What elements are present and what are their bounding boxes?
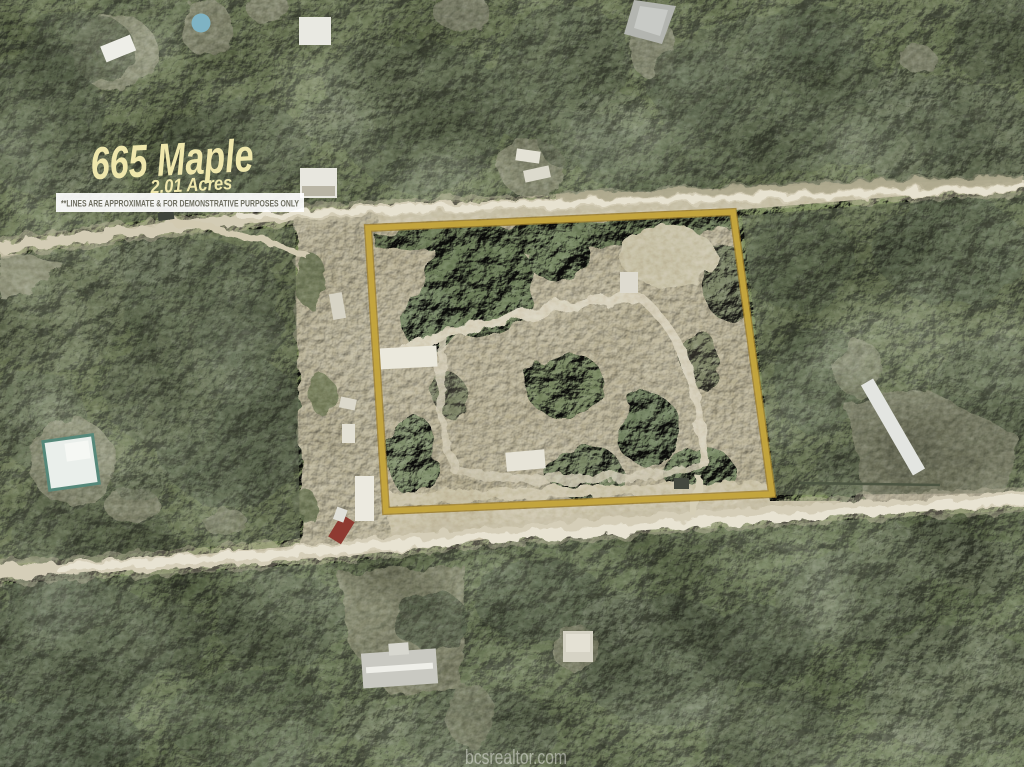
svg-text:**LINES ARE APPROXIMATE & FOR: **LINES ARE APPROXIMATE & FOR DEMONSTRAT… — [61, 199, 299, 209]
svg-text:bcsrealtor.com: bcsrealtor.com — [465, 747, 567, 767]
